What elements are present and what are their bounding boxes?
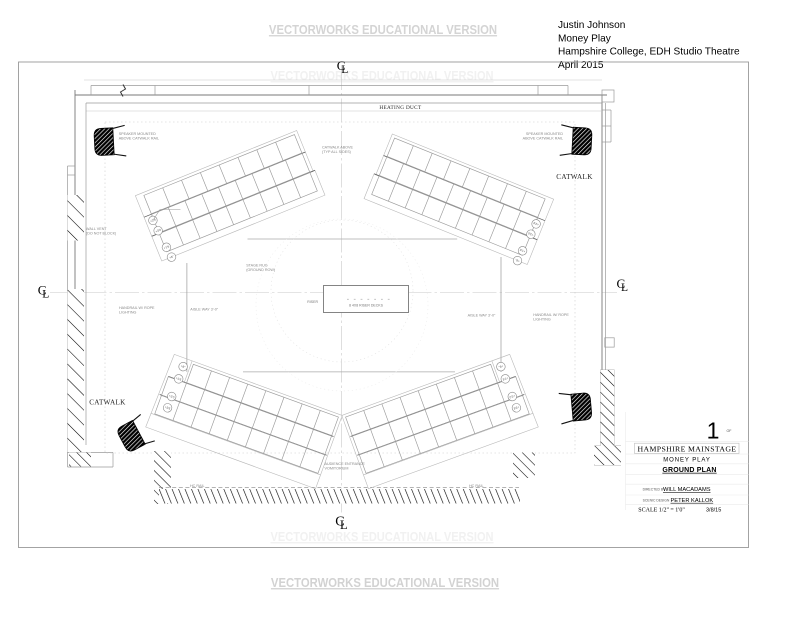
svg-text:PETER KALLOK: PETER KALLOK: [671, 498, 714, 504]
svg-text:MONEY PLAY: MONEY PLAY: [663, 457, 710, 463]
svg-text:GROUND PLAN: GROUND PLAN: [662, 467, 716, 474]
svg-text:8 4X8 RISER DECKS: 8 4X8 RISER DECKS: [349, 304, 384, 308]
svg-text:STAGE RUG: STAGE RUG: [246, 264, 268, 268]
svg-text:Money Play: Money Play: [558, 33, 612, 44]
svg-text:WILL MACADAMS: WILL MACADAMS: [663, 487, 711, 493]
svg-text:SPEAKER MOUNTED: SPEAKER MOUNTED: [526, 132, 563, 136]
svg-text:VECTORWORKS EDUCATIONAL VERSIO: VECTORWORKS EDUCATIONAL VERSION: [271, 575, 499, 590]
svg-text:HAMPSHIRE MAINSTAGE: HAMPSHIRE MAINSTAGE: [638, 444, 737, 453]
svg-text:LIGHTING: LIGHTING: [533, 317, 551, 321]
svg-text:CATWALK: CATWALK: [556, 173, 593, 181]
svg-text:VECTORWORKS EDUCATIONAL VERSIO: VECTORWORKS EDUCATIONAL VERSION: [271, 529, 494, 544]
svg-text:1: 1: [707, 417, 720, 443]
svg-text:OF: OF: [727, 429, 733, 433]
svg-text:AUDIENCE ENTRANCE: AUDIENCE ENTRANCE: [325, 462, 366, 466]
svg-text:CATWALK: CATWALK: [89, 399, 126, 407]
svg-text:CATWALK ABOVE: CATWALK ABOVE: [322, 146, 353, 150]
svg-text:SCENIC DESIGN: SCENIC DESIGN: [643, 498, 670, 502]
svg-text:HEATING DUCT: HEATING DUCT: [379, 105, 422, 111]
svg-text:VECTORWORKS EDUCATIONAL VERSIO: VECTORWORKS EDUCATIONAL VERSION: [269, 22, 497, 37]
svg-text:VOMITORIUM: VOMITORIUM: [325, 467, 349, 471]
svg-text:SCALE 1/2" = 1'0": SCALE 1/2" = 1'0": [638, 508, 685, 514]
svg-text:AISLE WAY 3'-0": AISLE WAY 3'-0": [468, 314, 496, 318]
svg-text:ABOVE CATWALK RAIL: ABOVE CATWALK RAIL: [523, 136, 563, 140]
svg-text:HC RAIL: HC RAIL: [190, 484, 205, 488]
svg-text:3/8/15: 3/8/15: [706, 507, 721, 513]
svg-text:Justin Johnson: Justin Johnson: [558, 20, 625, 31]
svg-text:(TYP ALL SIDES): (TYP ALL SIDES): [322, 150, 351, 154]
svg-text:(GROUND ROW): (GROUND ROW): [246, 268, 275, 272]
svg-text:AISLE WAY 3'-0": AISLE WAY 3'-0": [190, 308, 218, 312]
svg-text:Hampshire College, EDH Studio: Hampshire College, EDH Studio Theatre: [558, 47, 740, 58]
svg-text:VECTORWORKS EDUCATIONAL VERSIO: VECTORWORKS EDUCATIONAL VERSION: [271, 68, 494, 83]
svg-text:LIGHTING: LIGHTING: [119, 310, 137, 314]
svg-text:HANDRAIL W/ ROPE: HANDRAIL W/ ROPE: [119, 306, 155, 310]
svg-text:SPEAKER MOUNTED: SPEAKER MOUNTED: [119, 132, 156, 136]
svg-text:RISER: RISER: [307, 300, 318, 304]
svg-text:WALL VENT: WALL VENT: [86, 227, 107, 231]
svg-text:HC RAIL: HC RAIL: [469, 484, 484, 488]
svg-text:HANDRAIL W/ ROPE: HANDRAIL W/ ROPE: [533, 313, 569, 317]
svg-text:(DO NOT BLOCK): (DO NOT BLOCK): [86, 231, 116, 235]
svg-text:ABOVE CATWALK RAIL: ABOVE CATWALK RAIL: [119, 136, 159, 140]
